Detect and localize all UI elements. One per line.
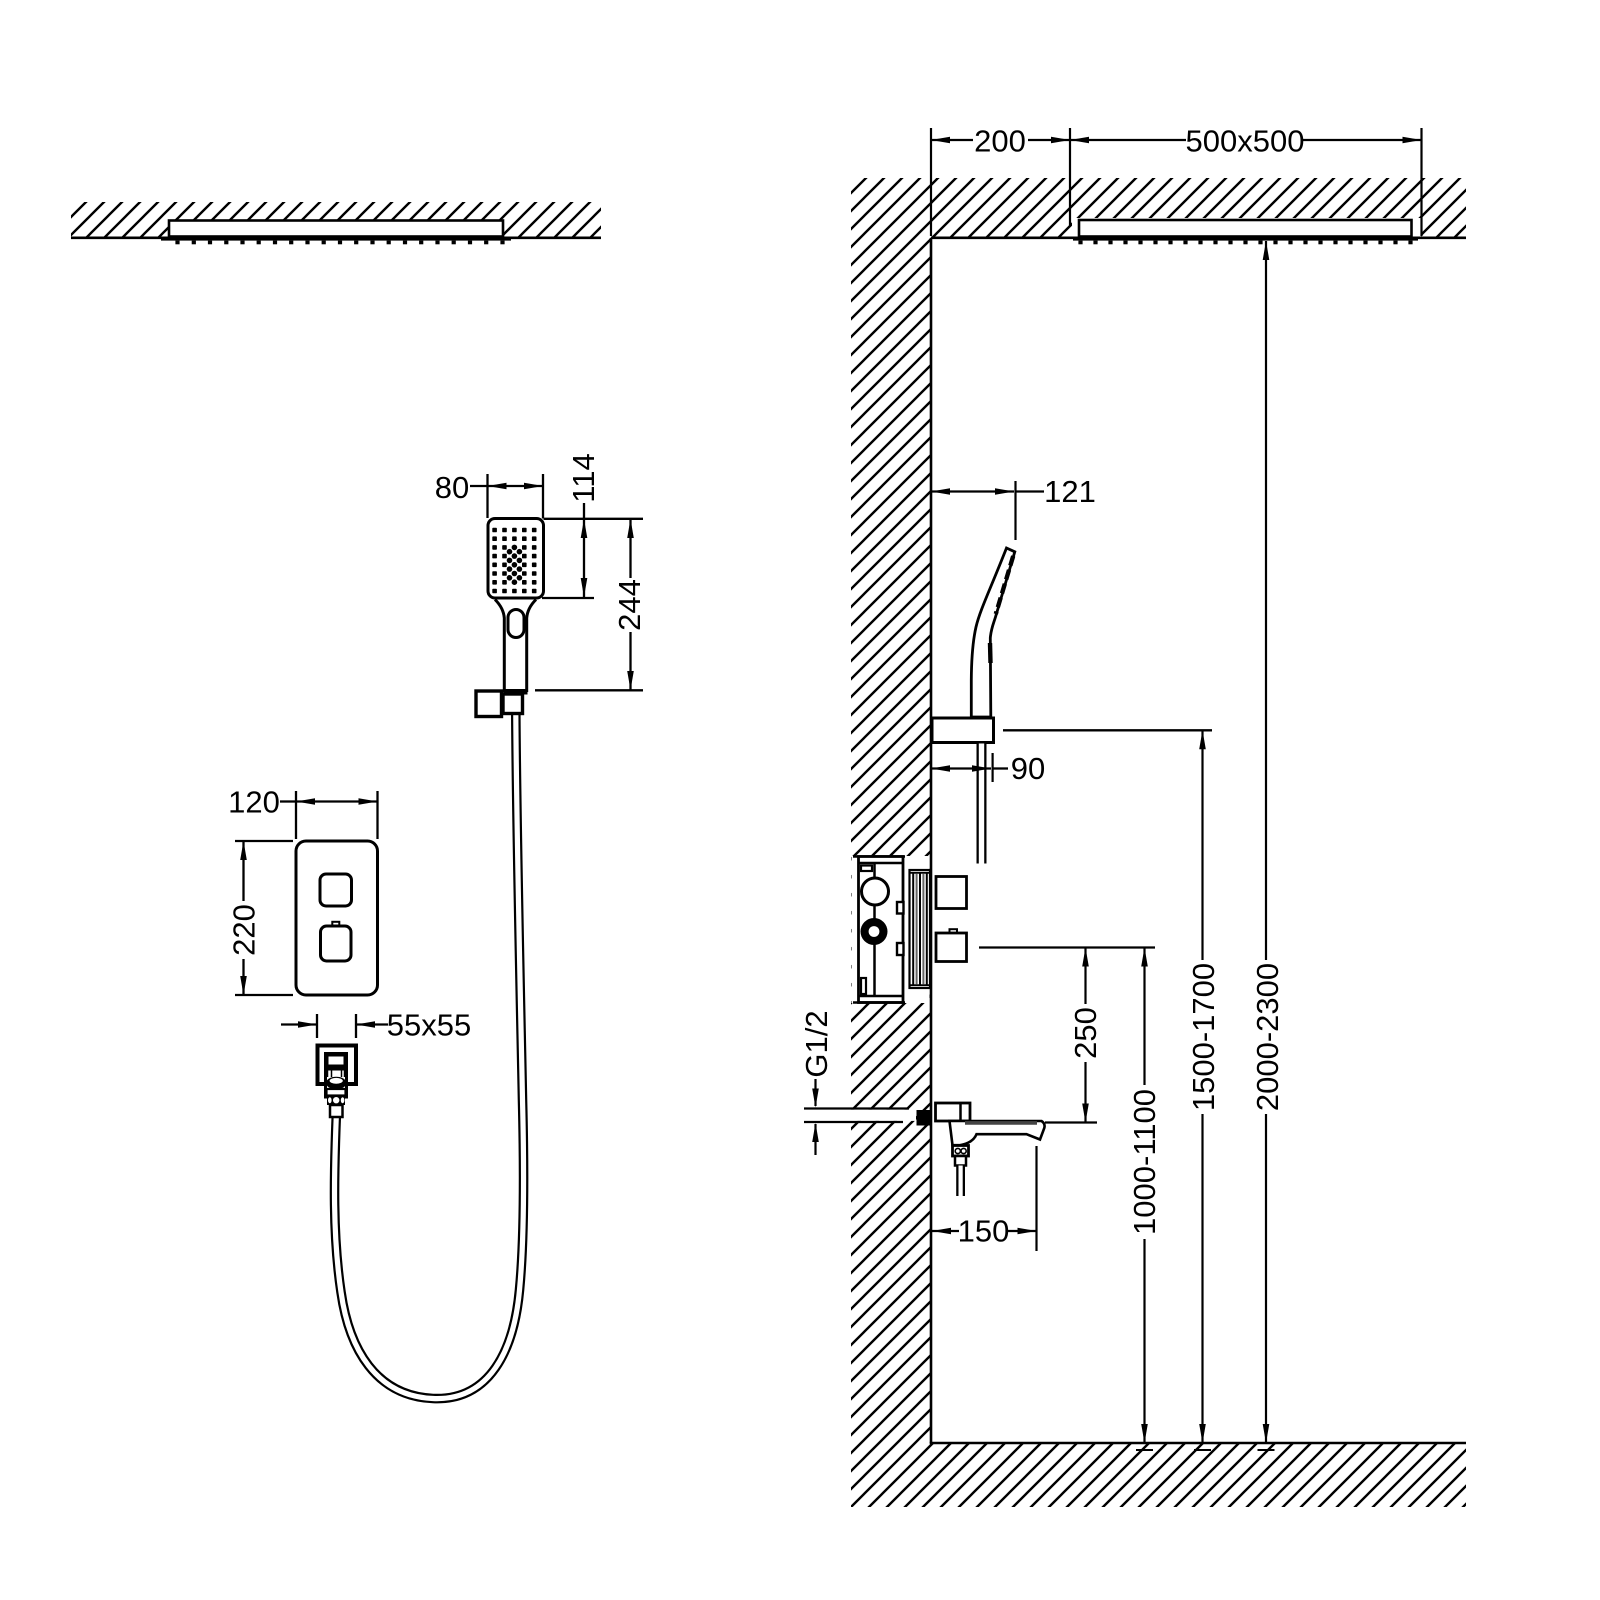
- svg-text:220: 220: [227, 904, 262, 956]
- svg-text:114: 114: [566, 453, 601, 502]
- svg-text:2000-2300: 2000-2300: [1250, 963, 1285, 1111]
- svg-text:150: 150: [958, 1214, 1010, 1249]
- svg-text:500x500: 500x500: [1186, 124, 1305, 159]
- svg-text:1000-1100: 1000-1100: [1127, 1089, 1162, 1235]
- svg-text:90: 90: [1011, 751, 1045, 786]
- svg-text:G1/2: G1/2: [799, 1010, 834, 1077]
- svg-text:55x55: 55x55: [387, 1008, 471, 1043]
- svg-text:250: 250: [1068, 1007, 1103, 1059]
- svg-text:121: 121: [1044, 474, 1096, 509]
- svg-text:200: 200: [974, 124, 1026, 159]
- svg-text:244: 244: [612, 579, 647, 631]
- svg-text:120: 120: [228, 785, 280, 820]
- svg-text:80: 80: [435, 470, 469, 505]
- svg-text:1500-1700: 1500-1700: [1186, 963, 1221, 1111]
